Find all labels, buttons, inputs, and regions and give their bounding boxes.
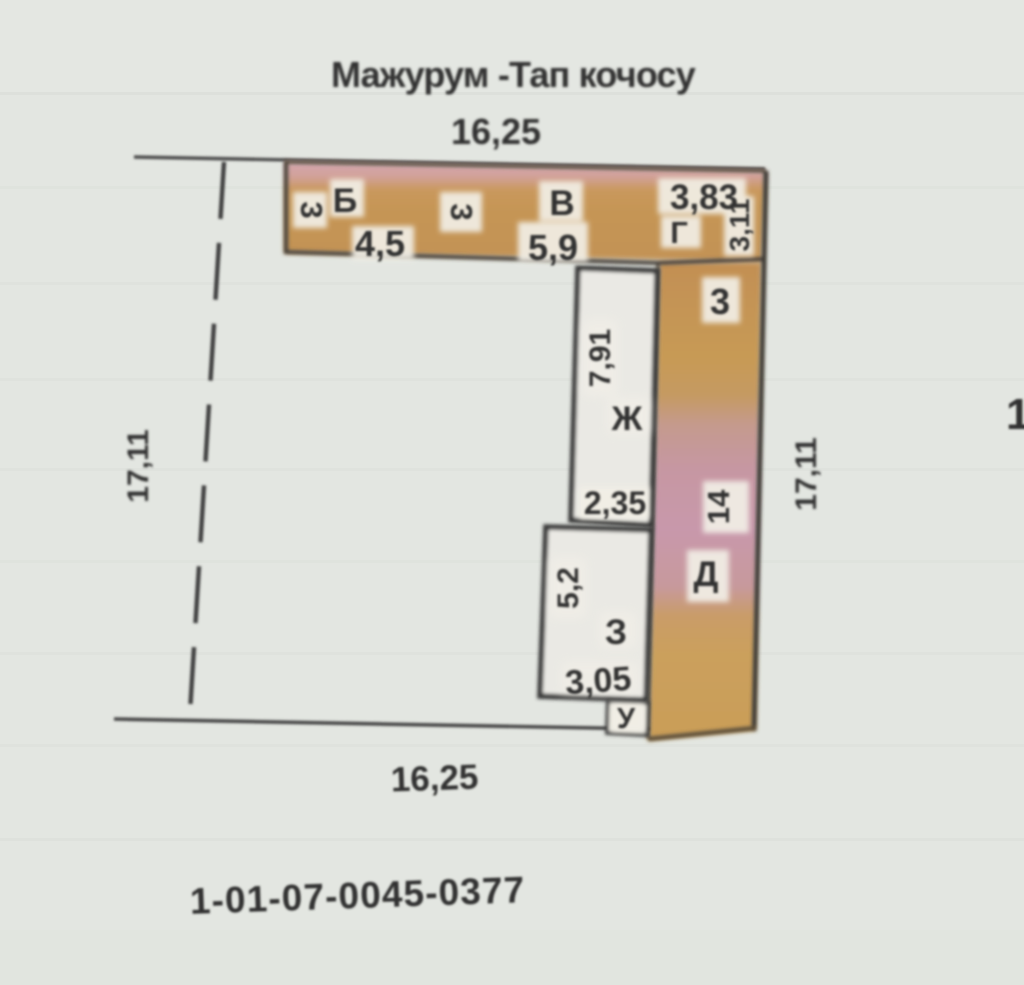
svg-text:У: У [617,703,636,735]
svg-text:Мажурум -Тап кочосу: Мажурум -Тап кочосу [331,54,696,95]
svg-text:16,25: 16,25 [390,757,479,799]
svg-text:3,11: 3,11 [724,199,755,252]
svg-text:3,05: 3,05 [564,660,633,703]
svg-text:3: 3 [294,201,329,218]
svg-text:3: 3 [710,281,730,322]
svg-text:16,25: 16,25 [451,111,541,152]
svg-text:2,35: 2,35 [584,485,646,521]
svg-text:14: 14 [701,489,736,524]
svg-text:Д: Д [694,555,719,594]
svg-text:5,2: 5,2 [552,567,585,609]
svg-text:З: З [605,613,627,652]
svg-text:5,9: 5,9 [528,227,578,268]
svg-text:Ж: Ж [611,400,643,438]
svg-text:Г: Г [670,215,688,250]
svg-text:Б: Б [333,182,357,220]
svg-text:17,11: 17,11 [790,437,823,510]
svg-text:3: 3 [444,203,479,220]
svg-text:7,91: 7,91 [584,329,617,387]
svg-text:В: В [549,184,574,223]
svg-text:1: 1 [1006,390,1024,439]
svg-text:17,11: 17,11 [122,429,155,502]
svg-text:4,5: 4,5 [355,223,405,264]
